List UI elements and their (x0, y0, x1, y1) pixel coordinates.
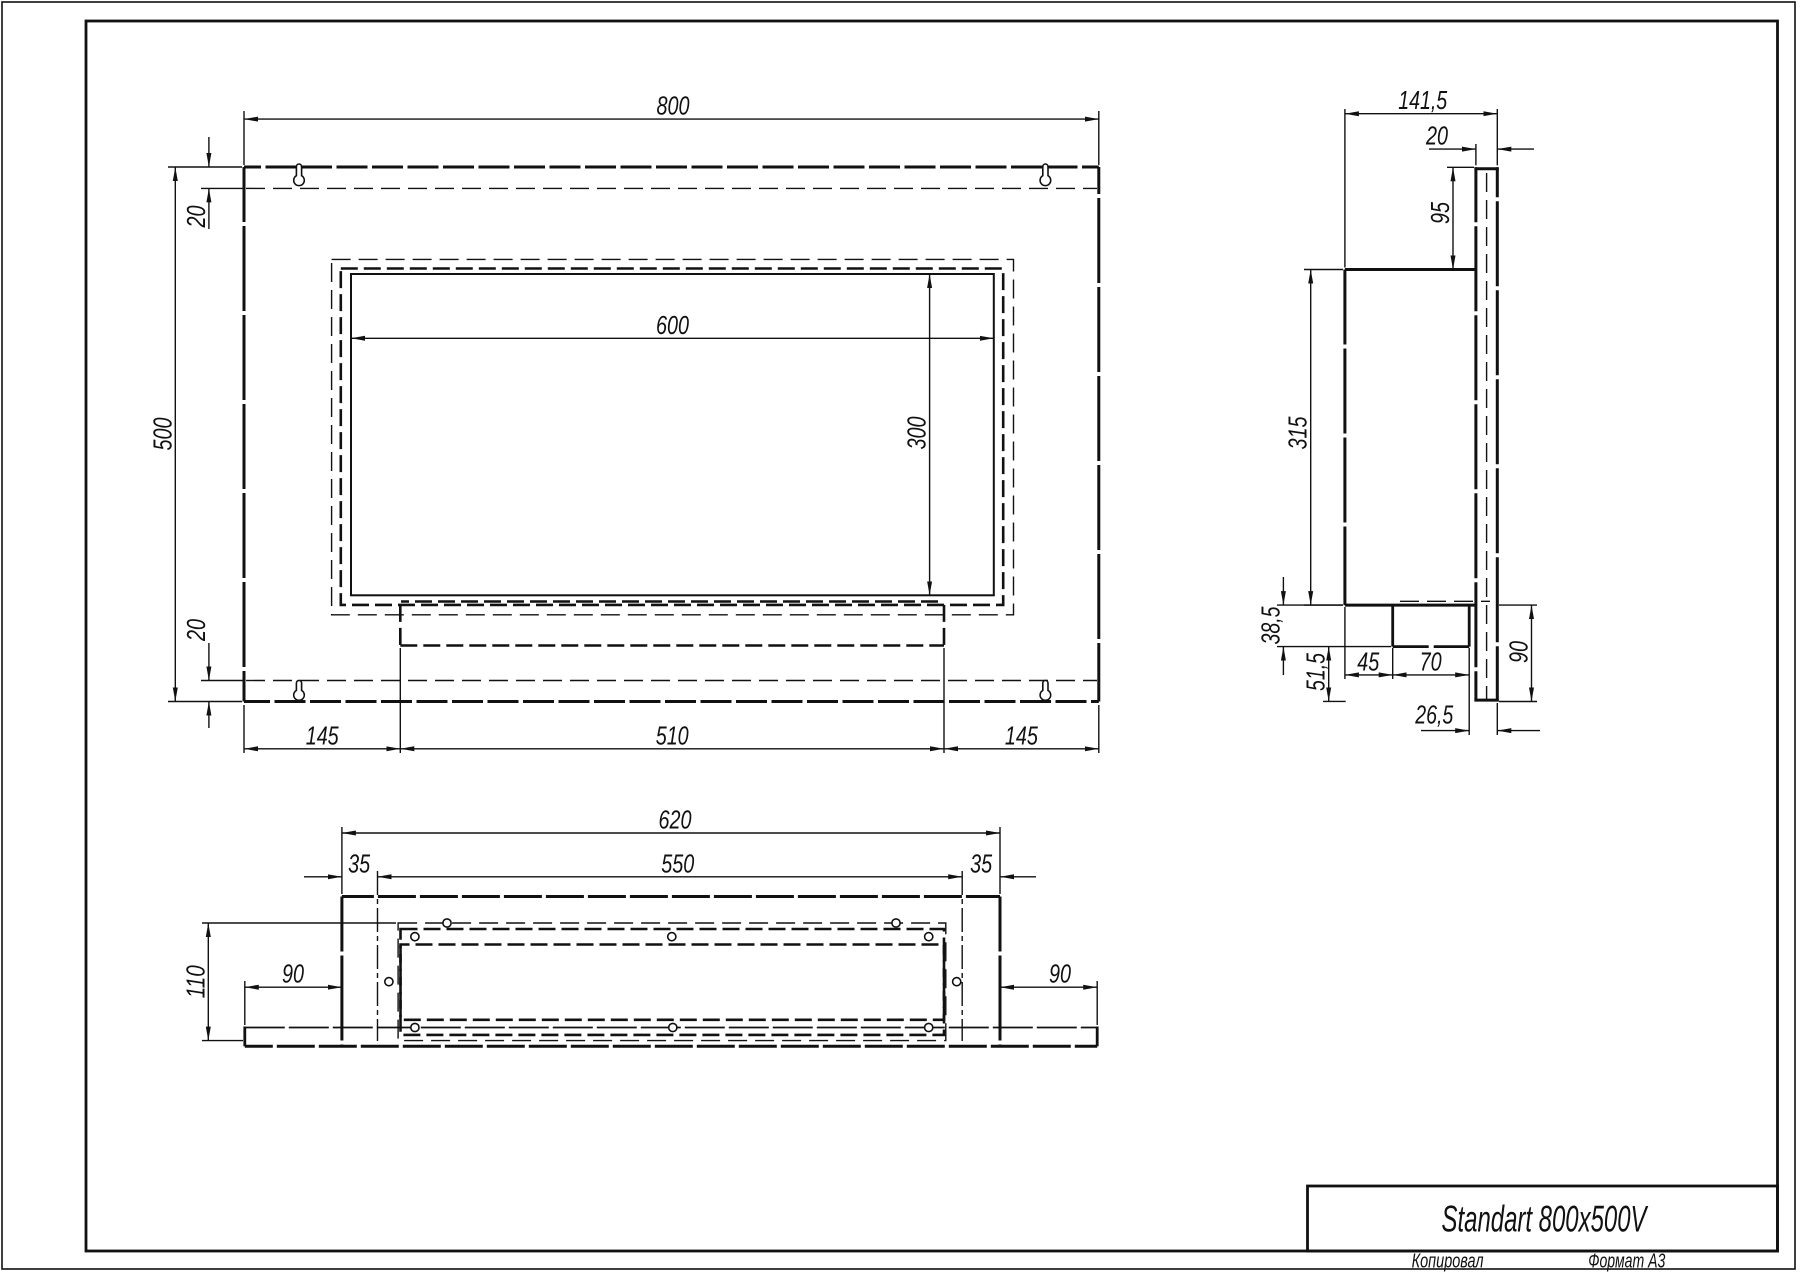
svg-text:20: 20 (1425, 121, 1448, 151)
svg-text:550: 550 (661, 848, 694, 878)
svg-text:500: 500 (147, 417, 177, 450)
svg-text:300: 300 (902, 416, 932, 449)
svg-text:26,5: 26,5 (1415, 700, 1454, 730)
svg-text:51,5: 51,5 (1301, 653, 1331, 691)
svg-text:315: 315 (1283, 416, 1313, 449)
svg-text:20: 20 (181, 205, 211, 228)
svg-text:510: 510 (656, 720, 689, 750)
svg-text:Копировал: Копировал (1412, 1251, 1484, 1273)
svg-text:620: 620 (659, 805, 692, 835)
svg-text:35: 35 (970, 848, 992, 878)
svg-text:145: 145 (306, 720, 339, 750)
svg-text:800: 800 (657, 91, 690, 121)
svg-text:45: 45 (1357, 646, 1379, 676)
svg-text:600: 600 (656, 310, 689, 340)
svg-text:35: 35 (348, 848, 370, 878)
svg-text:Формат А3: Формат А3 (1588, 1251, 1665, 1273)
svg-text:110: 110 (180, 965, 210, 998)
svg-text:90: 90 (282, 959, 304, 989)
svg-text:145: 145 (1005, 720, 1038, 750)
svg-text:38,5: 38,5 (1255, 606, 1285, 644)
svg-text:20: 20 (181, 619, 211, 642)
svg-text:141,5: 141,5 (1398, 85, 1447, 115)
svg-text:95: 95 (1425, 202, 1455, 224)
svg-text:90: 90 (1504, 641, 1534, 663)
svg-text:70: 70 (1420, 646, 1442, 676)
svg-text:Standart 800x500V: Standart 800x500V (1442, 1199, 1649, 1240)
svg-text:90: 90 (1049, 959, 1071, 989)
